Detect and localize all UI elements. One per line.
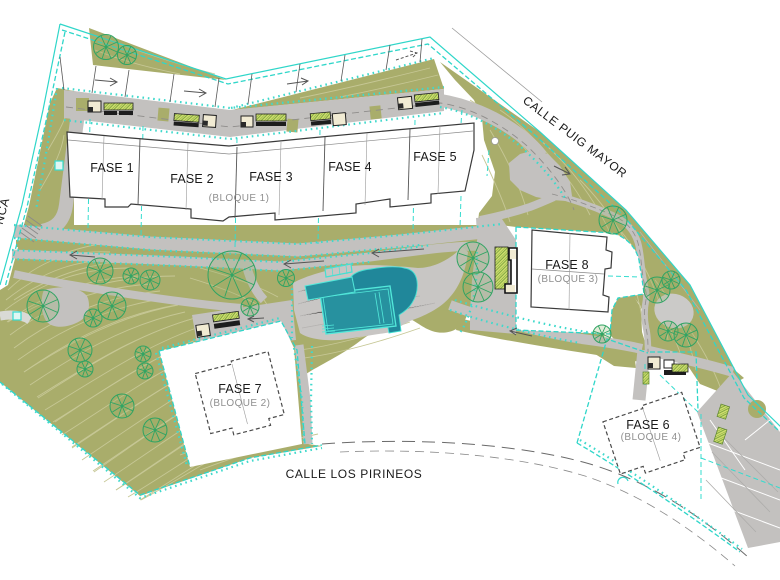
svg-text:(BLOQUE 4): (BLOQUE 4) [621, 432, 682, 443]
svg-text:FASE 1: FASE 1 [90, 161, 134, 175]
svg-text:FASE 4: FASE 4 [328, 160, 372, 174]
svg-text:(BLOQUE 1): (BLOQUE 1) [209, 193, 270, 204]
svg-text:FASE 8: FASE 8 [545, 258, 589, 272]
svg-text:CALLE LOS PIRINEOS: CALLE LOS PIRINEOS [286, 467, 423, 481]
svg-text:FASE 5: FASE 5 [413, 150, 457, 164]
svg-text:FASE 3: FASE 3 [249, 170, 293, 184]
svg-text:(BLOQUE 3): (BLOQUE 3) [538, 274, 599, 285]
svg-text:FASE 2: FASE 2 [170, 172, 214, 186]
svg-text:FASE 6: FASE 6 [626, 418, 670, 432]
svg-text:FASE 7: FASE 7 [218, 382, 262, 396]
svg-text:(BLOQUE 2): (BLOQUE 2) [210, 398, 271, 409]
